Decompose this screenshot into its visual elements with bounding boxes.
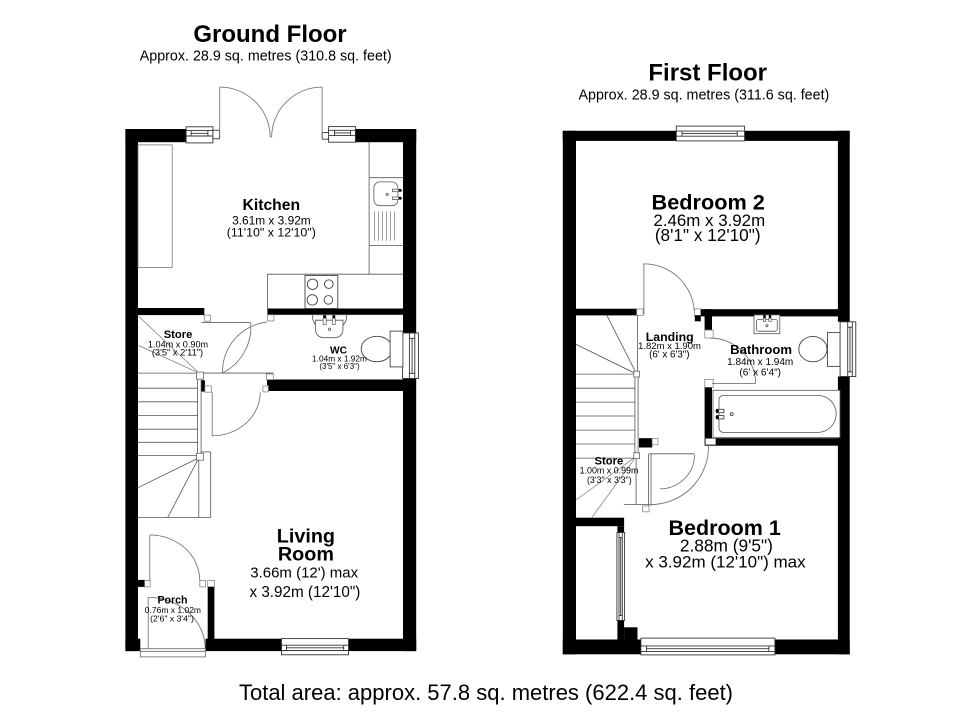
- svg-text:1.00m x 0.99m: 1.00m x 0.99m: [580, 466, 639, 476]
- svg-text:Ground Floor: Ground Floor: [193, 21, 346, 48]
- svg-text:(3'3" x 3'3"): (3'3" x 3'3"): [587, 475, 632, 485]
- svg-text:1.84m x 1.94m: 1.84m x 1.94m: [727, 357, 793, 368]
- svg-text:Approx. 28.9 sq. metres (311.6: Approx. 28.9 sq. metres (311.6 sq. feet): [578, 87, 829, 103]
- svg-text:(11'10" x 12'10"): (11'10" x 12'10"): [227, 225, 316, 239]
- svg-text:Bathroom: Bathroom: [730, 342, 792, 357]
- svg-text:3.66m (12') max: 3.66m (12') max: [250, 564, 358, 581]
- svg-text:x 3.92m (12'10"): x 3.92m (12'10"): [249, 584, 360, 601]
- svg-text:Approx. 28.9 sq. metres (310.8: Approx. 28.9 sq. metres (310.8 sq. feet): [140, 48, 392, 64]
- svg-text:x 3.92m (12'10") max: x 3.92m (12'10") max: [645, 552, 806, 571]
- svg-text:(6' x 6'4"): (6' x 6'4"): [739, 367, 781, 378]
- svg-text:Total area: approx. 57.8 sq. m: Total area: approx. 57.8 sq. metres (622…: [239, 680, 733, 705]
- svg-text:(8'1" x 12'10"): (8'1" x 12'10"): [655, 225, 761, 245]
- svg-text:Room: Room: [278, 544, 334, 566]
- svg-text:Kitchen: Kitchen: [243, 197, 301, 214]
- svg-text:(2'6" x 3'4"): (2'6" x 3'4"): [150, 614, 194, 624]
- svg-text:(6' x 6'3"): (6' x 6'3"): [649, 349, 689, 360]
- svg-text:First Floor: First Floor: [648, 59, 767, 86]
- svg-text:(3'5" x 2'11"): (3'5" x 2'11"): [152, 348, 203, 358]
- svg-text:(3'5" x 6'3"): (3'5" x 6'3"): [319, 362, 360, 371]
